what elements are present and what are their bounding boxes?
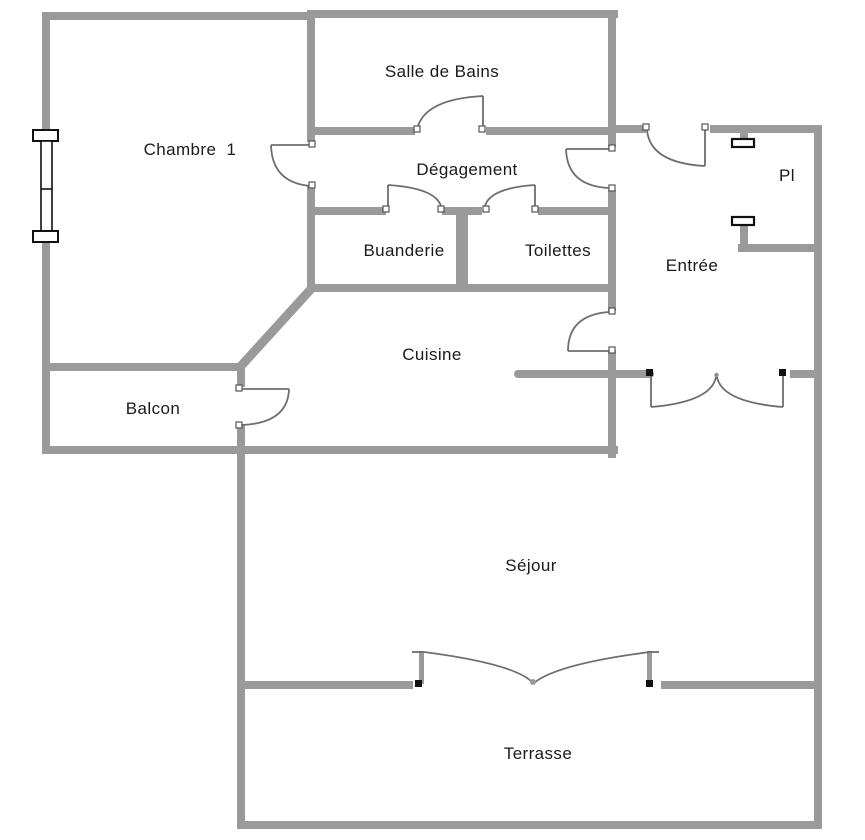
door-swing-arc [485,185,535,206]
jamb-marker [383,206,389,212]
door-chambre [271,145,312,186]
door-swing-arc [647,130,705,166]
door-swing-arc [717,377,783,407]
jamb-marker [609,308,615,314]
window-cap-bottom [33,231,58,242]
window-symbol [33,130,58,242]
wall-segment [608,350,616,458]
doors [241,96,783,685]
wall-segment [608,10,616,147]
floor-plan: Salle de Bains Chambre 1 Dégagement Pl B… [0,0,865,840]
wall-segment [710,125,822,133]
jamb-marker [609,185,615,191]
wall-segment [814,125,822,829]
wall-segment [42,12,308,20]
jamb-marker [483,206,489,212]
jamb-marker [609,145,615,151]
wall-segment [237,821,822,829]
wall-segment [307,10,315,142]
wall-segment [237,681,413,689]
room-label-balcon: Balcon [126,399,180,419]
door-salle-de-bains [418,96,483,127]
jamb-marker [236,385,242,391]
wall-segment [740,224,748,251]
jamb-marker [702,124,708,130]
door-meeting-tip [714,373,718,377]
room-label-toilettes: Toilettes [525,241,591,261]
room-label-cuisine: Cuisine [402,345,462,365]
room-label-terrasse: Terrasse [504,744,572,764]
room-label-chambre-1: Chambre 1 [144,140,237,160]
jamb-marker [643,124,649,130]
pivot-marker [646,369,653,376]
wall-segment [42,242,50,454]
wall-segment [738,244,822,252]
jamb-marker [414,126,420,132]
window-cap-top [33,130,58,141]
room-label-entree: Entrée [666,256,719,276]
window-body [41,141,52,231]
door-swing-arc [271,145,311,186]
door-swing-arc [566,149,609,188]
jamb-marker [236,422,242,428]
wall-segment [661,681,818,689]
wall-segment-diagonal [241,289,311,366]
door-swing-arc [418,96,483,126]
room-label-degagement: Dégagement [416,160,517,180]
room-label-buanderie: Buanderie [363,241,444,261]
wall-segment [42,446,618,454]
door-leaf [419,651,424,684]
door-entrance [647,129,705,166]
door-toilettes [485,185,535,207]
wall-segment [456,207,468,292]
floor-plan-drawing [0,0,865,840]
wall-segment [538,207,616,215]
wall-segment [608,190,616,311]
door-swing-arc [424,652,533,683]
wall-segment [486,127,616,135]
wall-segment [42,12,50,132]
double-door-terrasse [412,651,659,685]
jamb-marker [532,206,538,212]
door-cuisine [568,312,610,351]
jamb-marker [309,182,315,188]
closet-marks [732,139,754,225]
jamb-marker [309,141,315,147]
door-swing-arc [388,185,441,206]
wall-segment [307,127,415,135]
jamb-marker [479,126,485,132]
door-swing-arc [568,312,609,351]
door-leaf [647,651,652,684]
room-label-salle-de-bains: Salle de Bains [385,62,499,82]
door-meeting-tip [530,679,536,685]
jamb-marker [438,206,444,212]
door-swing-arc [534,652,650,683]
door-pivot-markers [415,369,786,687]
wall-segment [307,207,386,215]
room-label-sejour: Séjour [505,556,557,576]
wall-segment [237,424,245,829]
double-door-sejour [651,373,783,407]
pivot-marker [779,369,786,376]
door-balcon [241,389,289,425]
door-swing-arc [242,389,289,425]
door-swing-arc [651,377,716,407]
wall-segment [307,10,618,18]
closet-shelf-mark [732,217,754,225]
pivot-marker [415,680,422,687]
wall-segment [307,185,315,292]
door-degagement [566,149,610,188]
closet-shelf-mark [732,139,754,147]
pivot-marker [646,680,653,687]
wall-segment [42,363,245,371]
door-buanderie [388,185,441,207]
jamb-marker [609,347,615,353]
room-label-pl: Pl [779,166,795,186]
